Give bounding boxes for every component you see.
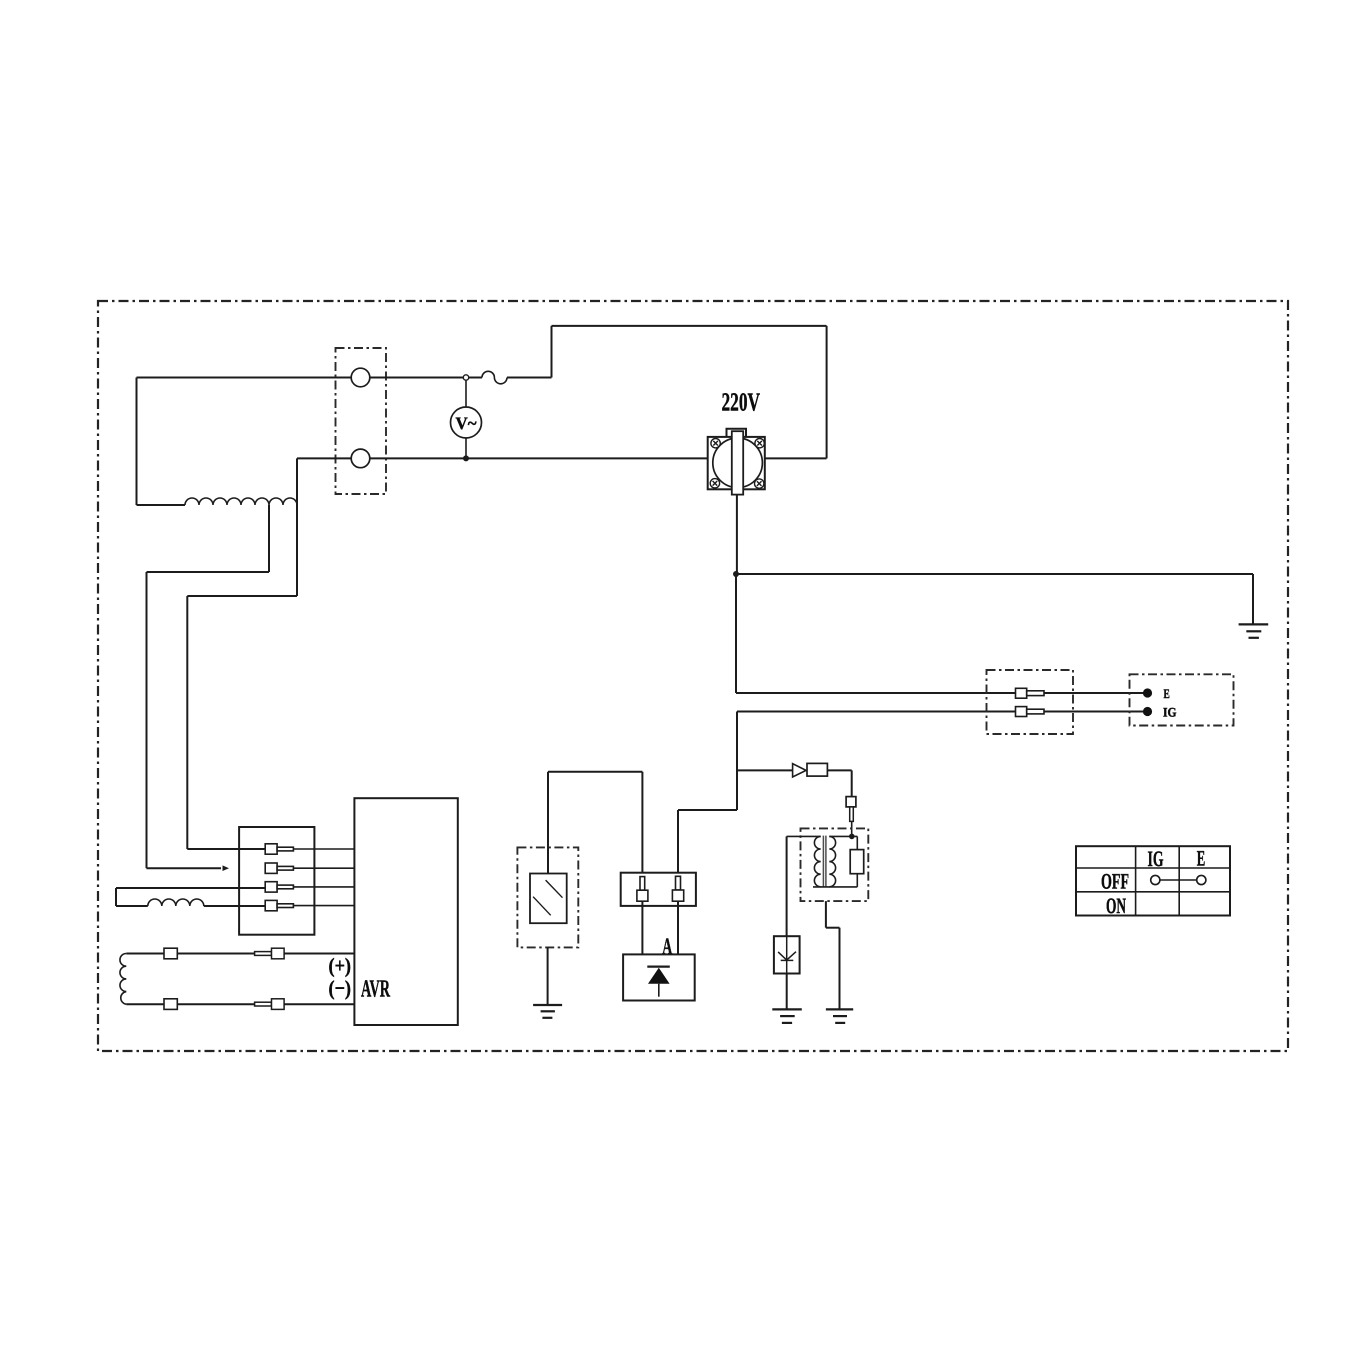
- svg-text:IG: IG: [1148, 846, 1164, 871]
- svg-text:E: E: [1197, 845, 1206, 870]
- svg-text:OFF: OFF: [1101, 868, 1129, 893]
- svg-text:220V: 220V: [722, 388, 761, 417]
- svg-text:(+): (+): [329, 954, 352, 978]
- svg-text:IG: IG: [1163, 705, 1177, 720]
- svg-text:V~: V~: [456, 413, 477, 433]
- svg-text:(−): (−): [329, 976, 352, 1000]
- svg-text:AVR: AVR: [361, 976, 390, 1003]
- svg-text:ON: ON: [1106, 893, 1126, 918]
- svg-text:E: E: [1164, 686, 1170, 701]
- svg-text:A: A: [662, 934, 672, 960]
